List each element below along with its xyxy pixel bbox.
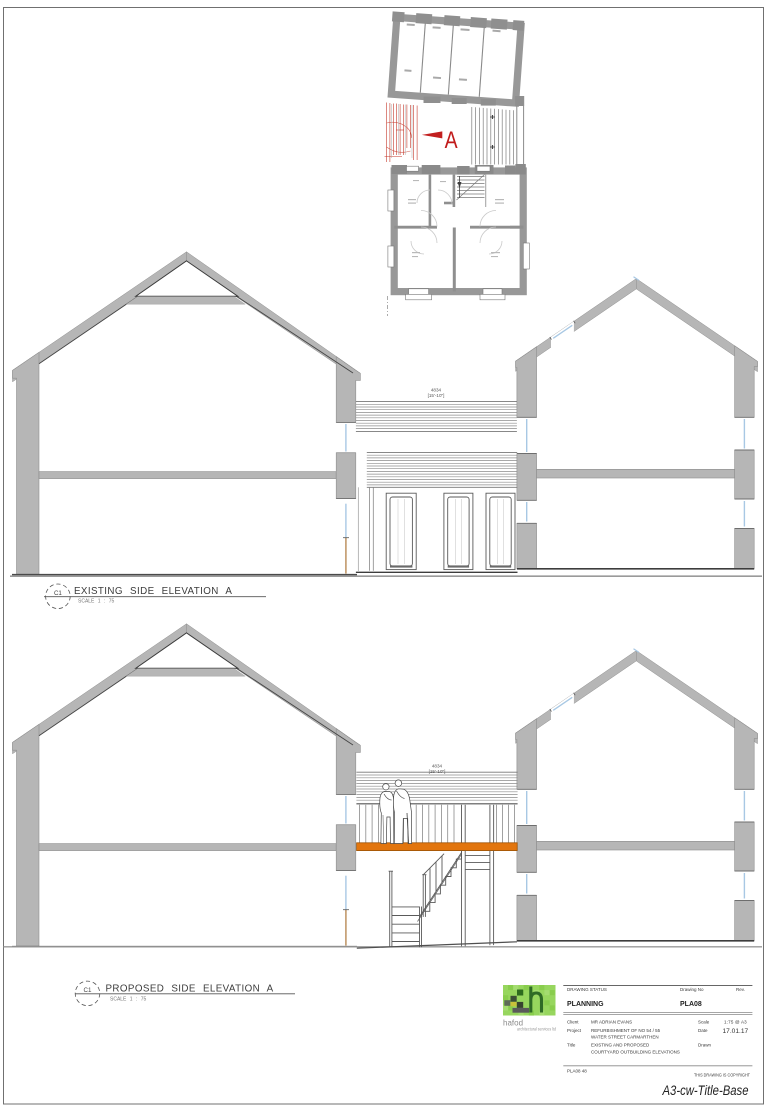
svg-text:WATER STREET CARMARTHEN: WATER STREET CARMARTHEN (591, 1035, 659, 1040)
svg-text:REFURBISHMENT OF NO 54 / 55: REFURBISHMENT OF NO 54 / 55 (591, 1028, 661, 1033)
svg-text:1:75 @ A3: 1:75 @ A3 (724, 1020, 747, 1025)
svg-text:A: A (445, 127, 459, 154)
svg-text:C1: C1 (54, 590, 62, 597)
svg-text:THIS DRAWING IS COPYRIGHT: THIS DRAWING IS COPYRIGHT (694, 1073, 750, 1078)
svg-text:Scale: Scale (698, 1020, 710, 1025)
svg-text:[15'-10"]: [15'-10"] (429, 769, 446, 774)
svg-text:COURTYARD OUTBUILDING ELEVATIO: COURTYARD OUTBUILDING ELEVATIONS (591, 1050, 680, 1055)
svg-text:C1: C1 (84, 987, 92, 994)
svg-text:DRAWING STATUS: DRAWING STATUS (567, 987, 607, 992)
svg-text:PROPOSED SIDE ELEVATION A: PROPOSED SIDE ELEVATION A (106, 983, 274, 994)
svg-text:[15'-10"]: [15'-10"] (428, 393, 445, 398)
svg-text:Drawn: Drawn (698, 1043, 712, 1048)
svg-text:Client: Client (567, 1020, 579, 1025)
svg-text:EXISTING SIDE ELEVATION A: EXISTING SIDE ELEVATION A (74, 586, 232, 597)
svg-text:Title: Title (567, 1043, 576, 1048)
svg-text:Drawing No: Drawing No (680, 987, 704, 992)
svg-text:Project: Project (567, 1028, 582, 1033)
svg-text:PLANNING: PLANNING (567, 1001, 604, 1008)
svg-text:architectural services ltd: architectural services ltd (517, 1027, 557, 1032)
svg-text:Date: Date (698, 1028, 708, 1033)
svg-text:17.01.17: 17.01.17 (723, 1028, 749, 1035)
svg-text:SCALE 1 : 75: SCALE 1 : 75 (110, 996, 147, 1002)
svg-text:SCALE 1 : 75: SCALE 1 : 75 (78, 598, 115, 604)
svg-text:PLA08 48: PLA08 48 (567, 1069, 587, 1074)
svg-text:4834: 4834 (432, 764, 443, 769)
svg-text:EXISTING AND PROPOSED: EXISTING AND PROPOSED (591, 1043, 650, 1048)
svg-text:4834: 4834 (431, 388, 442, 393)
svg-text:PLA08: PLA08 (680, 1001, 702, 1008)
svg-text:Rev.: Rev. (736, 987, 745, 992)
svg-text:A3-cw-Title-Base: A3-cw-Title-Base (662, 1083, 749, 1098)
svg-text:MR ADRIAN EVANS: MR ADRIAN EVANS (591, 1020, 632, 1025)
